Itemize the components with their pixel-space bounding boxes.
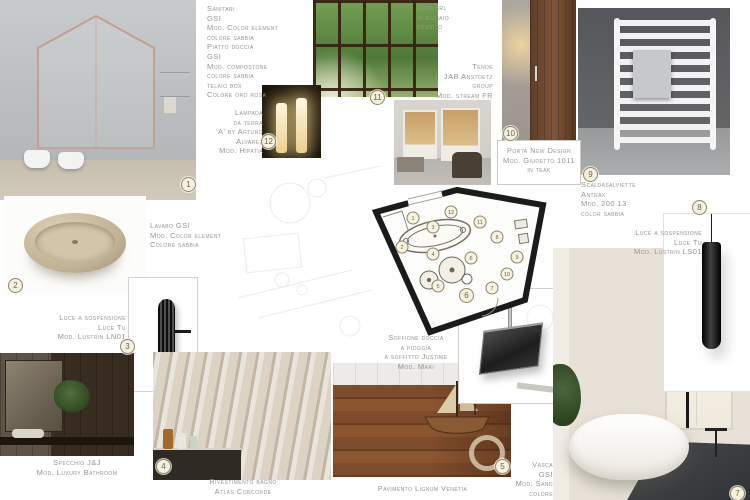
label-tende: Tende JAB Anstoetz group Mod. stream FR <box>398 62 493 100</box>
item-badge-3: 3 <box>120 339 135 354</box>
svg-text:10: 10 <box>504 272 510 278</box>
label-specchio: Specchio J&J Mod. Luxury Bathroom <box>14 458 140 477</box>
label-cima: Cima srl in acciaio brunito <box>417 3 505 32</box>
label-pavimento: Pavimento Lignum Venetia <box>335 484 510 494</box>
photo-vessel-washbasin <box>4 196 146 295</box>
label-rivestimento: Rivestimento bagno Atlas Concorde <box>168 477 318 496</box>
item-badge-7: 7 <box>730 486 745 500</box>
amber-bottle <box>163 429 173 449</box>
vanity-counter <box>0 437 134 445</box>
photo-teak-door <box>502 0 576 141</box>
lamp-column <box>276 103 287 153</box>
hanging-towel <box>633 50 671 98</box>
svg-text:7: 7 <box>490 286 493 292</box>
svg-text:3: 3 <box>431 225 434 231</box>
plant <box>553 364 581 426</box>
item-badge-6: 6 <box>459 288 474 303</box>
item-badge-4: 4 <box>156 459 171 474</box>
svg-text:6: 6 <box>469 256 472 262</box>
item-badge-9: 9 <box>583 167 598 182</box>
svg-text:11: 11 <box>477 220 483 226</box>
photo-towel-warmer <box>578 8 730 175</box>
item-badge-11: 11 <box>370 90 385 105</box>
mood-board: 112112348965710 Sanitari GSI Mod. Color … <box>0 0 750 500</box>
item-badge-10: 10 <box>503 126 518 141</box>
freestanding-bathtub <box>569 414 689 480</box>
svg-text:8: 8 <box>495 235 498 241</box>
item-badge-1: 1 <box>181 177 196 192</box>
svg-text:9: 9 <box>515 255 518 261</box>
pendant-cylinder <box>702 242 721 349</box>
svg-text:12: 12 <box>448 210 454 216</box>
white-bottle <box>178 433 186 449</box>
label-sanitari: Sanitari GSI Mod. Color element colore s… <box>207 4 317 100</box>
pendant-cord <box>711 214 712 244</box>
photo-bathroom-suite <box>0 0 196 200</box>
glass-bottle <box>190 436 197 449</box>
side-table-leg <box>715 431 717 457</box>
door-handle <box>535 66 537 81</box>
towel <box>164 97 176 113</box>
lamp-column <box>296 98 307 153</box>
label-pendant-light: Luce a sospensione Luce Tu Mod. Lustrin … <box>602 228 702 257</box>
item-badge-12: 12 <box>261 134 276 149</box>
wall-hung-toilet <box>58 152 84 169</box>
countertop-basin <box>12 429 44 438</box>
item-badge-8: 8 <box>692 200 707 215</box>
plant <box>54 380 90 412</box>
floor-plan: 112112348965710 <box>230 148 560 348</box>
wall-hung-bidet <box>24 150 50 168</box>
svg-text:4: 4 <box>431 252 434 258</box>
photo-wave-cladding <box>153 352 331 480</box>
svg-text:1: 1 <box>411 216 414 222</box>
sconce-arm <box>174 330 191 333</box>
svg-text:5: 5 <box>436 284 439 290</box>
photo-vanity-mirror <box>0 353 134 456</box>
item-badge-5: 5 <box>495 459 510 474</box>
label-wall-light: Luce a sospensione Luce Tu Mod. Lustrin … <box>30 313 126 342</box>
washbasin-drain <box>72 240 78 244</box>
shelf <box>160 72 190 73</box>
label-scaldasalviette: Scaldasalviette Antrax Mod. 200 13 color… <box>581 180 673 218</box>
svg-text:2: 2 <box>400 245 403 251</box>
item-badge-2: 2 <box>8 278 23 293</box>
